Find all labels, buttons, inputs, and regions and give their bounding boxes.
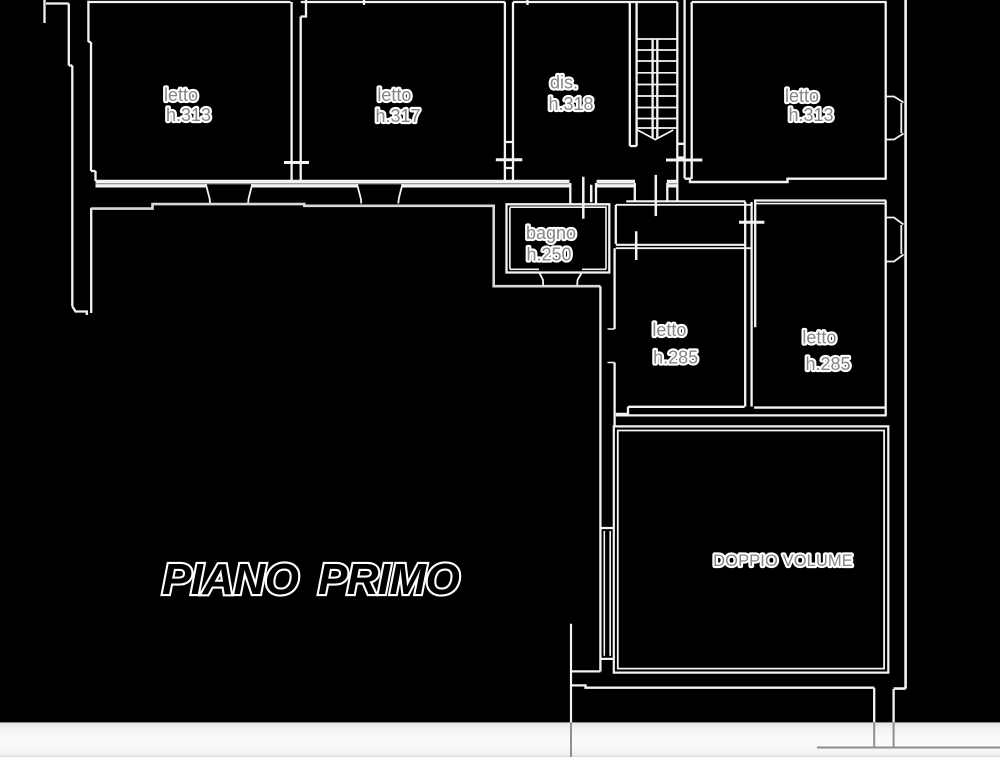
svg-text:DOPPIO VOLUME: DOPPIO VOLUME (713, 552, 853, 570)
svg-text:h.313: h.313 (166, 105, 211, 125)
svg-text:letto: letto (652, 320, 686, 340)
svg-text:letto: letto (802, 328, 836, 348)
svg-text:letto: letto (164, 85, 198, 105)
svg-text:letto: letto (785, 86, 819, 106)
svg-text:h.318: h.318 (548, 94, 593, 114)
svg-text:h.313: h.313 (788, 105, 833, 125)
svg-text:h.250: h.250 (526, 245, 571, 265)
svg-text:h.285: h.285 (805, 354, 850, 374)
svg-text:dis.: dis. (550, 73, 578, 93)
svg-text:bagno: bagno (526, 223, 576, 243)
svg-text:h.285: h.285 (653, 348, 698, 368)
svg-text:PIANO PRIMO: PIANO PRIMO (162, 555, 460, 604)
svg-text:h.317: h.317 (375, 106, 420, 126)
svg-text:letto: letto (377, 85, 411, 105)
